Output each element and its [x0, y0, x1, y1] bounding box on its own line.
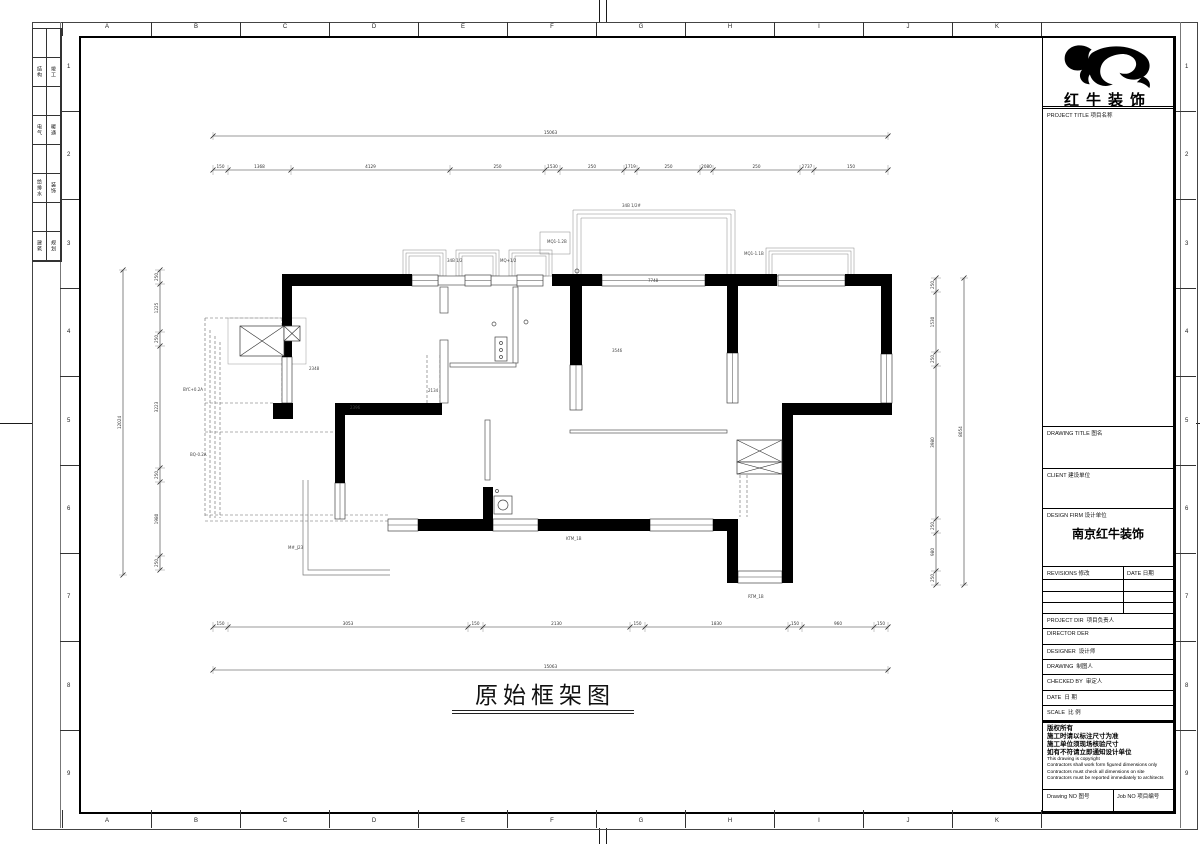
dim-label: 250	[588, 164, 596, 169]
dim-label: 250	[930, 281, 935, 289]
grid-number: 4	[1185, 329, 1188, 335]
grid-tick	[863, 810, 864, 828]
thin-wall	[440, 287, 448, 313]
balcony-frame	[303, 480, 390, 575]
grid-number: 1	[67, 64, 70, 70]
grid-number: 7	[67, 594, 70, 600]
grid-tick	[418, 22, 419, 36]
wall	[418, 519, 493, 531]
grid-tick	[1041, 22, 1042, 36]
fixture-circle	[492, 322, 496, 326]
grid-number: 5	[1185, 418, 1188, 424]
fixture-circle	[496, 490, 499, 493]
grid-letter: H	[728, 818, 732, 824]
dim-label: 1830	[711, 621, 722, 626]
note-line: 如有不符请立即通知设计单位	[1047, 749, 1169, 757]
grid-number: 8	[67, 683, 70, 689]
dim-label: 150	[472, 621, 480, 626]
grid-letter: B	[194, 818, 198, 824]
grid-tick	[1176, 288, 1196, 289]
wall	[881, 274, 892, 354]
dim-label: 2130	[551, 621, 562, 626]
rednull-logo-icon	[1058, 40, 1158, 90]
grid-letter: D	[372, 818, 376, 824]
grid-tick	[685, 810, 686, 828]
plan-label: BQ-0.2A	[190, 452, 207, 457]
dim-label: 250	[930, 355, 935, 363]
grid-tick	[60, 465, 79, 466]
title-block-row-label: DATE 日 期	[1047, 693, 1077, 701]
grid-tick	[1176, 641, 1196, 642]
plan-label: KTM_1B	[566, 536, 582, 541]
grid-tick	[596, 22, 597, 36]
grid-number: 6	[1185, 506, 1188, 512]
dim-label: 150	[217, 164, 225, 169]
title-underline	[452, 710, 634, 711]
fixture-circle	[500, 349, 503, 352]
note-line: Contractors must be reported immediately…	[1047, 776, 1169, 782]
grid-tick	[329, 810, 330, 828]
dim-label: 250	[494, 164, 502, 169]
plan-label: 34B 1/2#	[622, 203, 642, 208]
grid-number: 7	[1185, 594, 1188, 600]
dim-label: 1980	[154, 513, 159, 524]
grid-tick	[863, 22, 864, 36]
fixture-circle	[500, 356, 503, 359]
wall	[727, 276, 738, 353]
dim-label: 1719	[625, 164, 636, 169]
grid-letter: I	[818, 818, 820, 824]
wall	[782, 415, 793, 583]
grid-letter: C	[283, 24, 287, 30]
grid-tick	[1176, 730, 1196, 731]
grid-tick	[60, 641, 79, 642]
wall	[713, 519, 738, 531]
revisions-table: REVISIONS 修改 DATE 日期	[1043, 566, 1173, 613]
grid-tick	[952, 22, 953, 36]
thin-wall	[570, 430, 727, 433]
dim-label: 960	[834, 621, 842, 626]
terrace-outline	[577, 214, 731, 276]
dim-label: 3223	[154, 401, 159, 412]
wall	[782, 403, 892, 415]
note-line: Contractors shall work form figured dime…	[1047, 763, 1169, 769]
dim-label: 2080	[701, 164, 712, 169]
grid-number: 2	[67, 152, 70, 158]
note-line: 施工时请以标注尺寸为准	[1047, 733, 1169, 741]
grid-tick	[60, 111, 79, 112]
dim-label: 150	[217, 621, 225, 626]
grid-tick	[1176, 376, 1196, 377]
bay-window	[459, 253, 496, 276]
bay-window	[769, 251, 851, 276]
dim-label: 250	[154, 335, 159, 343]
dim-label: 1530	[547, 164, 558, 169]
plan-label: 3546	[612, 348, 623, 353]
fixture-circle	[498, 500, 508, 510]
dim-label: 15063	[544, 130, 558, 135]
grid-number: 4	[67, 329, 70, 335]
plan-label: 2134	[428, 388, 439, 393]
grid-letter: E	[461, 24, 465, 30]
plan-label: 34B 1/2	[447, 258, 463, 263]
copyright-notes: 版权所有施工时请以标注尺寸为准施工单位须现场核验尺寸如有不符请立即通知设计单位T…	[1043, 722, 1173, 789]
title-block-row-label: DIRECTOR DER	[1047, 631, 1089, 637]
grid-tick	[60, 199, 79, 200]
grid-tick	[151, 810, 152, 828]
bay-window	[515, 256, 546, 276]
grid-number: 2	[1185, 152, 1188, 158]
dim-label: 150	[634, 621, 642, 626]
dim-label: 250	[930, 522, 935, 530]
project-title-label: PROJECT TITLE 项目名称	[1047, 111, 1113, 119]
drawing-no-box: Drawing NO 图号 Job NO 项目编号	[1043, 789, 1173, 811]
grid-letter: J	[907, 24, 910, 30]
thin-wall	[450, 363, 516, 367]
grid-tick	[507, 810, 508, 828]
fixture-circle	[500, 342, 503, 345]
terrace-outline	[581, 218, 727, 276]
grid-tick	[507, 22, 508, 36]
title-block-row: PROJECT DIR 项目负责人	[1043, 613, 1173, 628]
title-block-row: DESIGNER 设计师	[1043, 644, 1173, 659]
dim-label: 2737	[802, 164, 813, 169]
dim-label: 980	[930, 548, 935, 556]
plan-label: MQ1-1.1B	[744, 251, 764, 256]
grid-letter: D	[372, 24, 376, 30]
grid-tick	[774, 22, 775, 36]
plan-label: RTM_1B	[748, 594, 764, 599]
bay-window	[406, 253, 443, 276]
grid-tick	[62, 810, 63, 828]
bay-window	[403, 250, 446, 276]
terrace-outline	[573, 210, 735, 276]
wall	[273, 403, 293, 419]
plan-label: BYC+0.2A	[183, 387, 203, 392]
title-block-row-label: DRAWING 制图人	[1047, 662, 1093, 670]
grid-tick	[60, 553, 79, 554]
grid-letter: F	[550, 818, 554, 824]
grid-letter: E	[461, 818, 465, 824]
drawing-sheet: 结构竣工电气暖通给排水装饰建筑规划 34B 1/2#MQ1-1.2B7748MQ…	[0, 0, 1200, 844]
title-underline	[452, 713, 634, 714]
dim-label: 3980	[930, 437, 935, 448]
floor-plan: 34B 1/2#MQ1-1.2B7748MQ1-1.1B34B 1/2MQ+1/…	[0, 0, 1200, 844]
grid-letter: G	[639, 818, 644, 824]
title-block-row-label: DESIGNER 设计师	[1047, 647, 1095, 655]
fixture-circle	[524, 320, 528, 324]
grid-number: 9	[1185, 771, 1188, 777]
grid-number: 3	[1185, 241, 1188, 247]
grid-tick	[1176, 111, 1196, 112]
grid-number: 8	[1185, 683, 1188, 689]
plan-label: 2348	[309, 366, 320, 371]
wall	[483, 487, 493, 520]
title-block-row-label: CHECKED BY 审定人	[1047, 677, 1102, 685]
title-block-row-label: PROJECT DIR 项目负责人	[1047, 616, 1114, 624]
bay-window	[766, 248, 854, 276]
title-block-row: DIRECTOR DER	[1043, 628, 1173, 643]
dim-label: 250	[753, 164, 761, 169]
dim-label: 12024	[117, 416, 122, 430]
grid-number: 9	[67, 771, 70, 777]
grid-tick	[774, 810, 775, 828]
grid-tick	[62, 22, 63, 36]
grid-letter: F	[550, 24, 554, 30]
dim-label: 1368	[254, 164, 265, 169]
wall	[705, 274, 777, 286]
grid-letter: C	[283, 818, 287, 824]
thin-wall	[438, 276, 467, 285]
title-block: 红牛装饰 PROJECT TITLE 项目名称 DRAWING TITLE 图名…	[1042, 36, 1174, 812]
client-box: CLIENT 建设单位	[1043, 468, 1173, 508]
plan-label: 2396	[350, 405, 361, 410]
bay-window	[456, 250, 499, 276]
grid-letter: A	[105, 24, 109, 30]
design-firm-box: DESIGN FIRM 设计单位 南京红牛装饰	[1043, 508, 1173, 566]
title-block-row-label: SCALE 比 例	[1047, 708, 1081, 716]
dim-label: 250	[154, 559, 159, 567]
grid-letter: I	[818, 24, 820, 30]
title-block-row: DRAWING 制图人	[1043, 659, 1173, 674]
grid-tick	[418, 810, 419, 828]
grid-letter: H	[728, 24, 732, 30]
dim-label: 1225	[154, 302, 159, 313]
plan-title: 原始框架图	[455, 676, 635, 710]
grid-number: 6	[67, 506, 70, 512]
grid-tick	[60, 376, 79, 377]
grid-letter: J	[907, 818, 910, 824]
balcony-frame	[308, 480, 390, 570]
bay-window	[409, 256, 440, 276]
plan-label: M#_J23	[288, 545, 304, 550]
grid-tick	[952, 810, 953, 828]
grid-tick	[1176, 553, 1196, 554]
dim-label: 150	[791, 621, 799, 626]
grid-tick	[1041, 810, 1042, 828]
thin-wall	[485, 420, 490, 480]
grid-tick	[60, 288, 79, 289]
drawing-title-box: DRAWING TITLE 图名	[1043, 426, 1173, 468]
thin-wall	[513, 287, 518, 363]
grid-tick	[1176, 465, 1196, 466]
fixture	[495, 337, 507, 361]
grid-letter: G	[639, 24, 644, 30]
thin-wall	[491, 276, 519, 285]
note-line: 施工单位须现场核验尺寸	[1047, 741, 1169, 749]
dim-label: 150	[877, 621, 885, 626]
grid-tick	[240, 810, 241, 828]
wall	[570, 274, 582, 365]
dim-label: 250	[930, 574, 935, 582]
grid-tick	[596, 810, 597, 828]
grid-number: 5	[67, 418, 70, 424]
note-line: 版权所有	[1047, 725, 1169, 733]
dim-label: 1530	[930, 316, 935, 327]
plan-label: MQ+1/2	[500, 258, 517, 263]
grid-tick	[240, 22, 241, 36]
grid-letter: K	[995, 818, 999, 824]
grid-number: 3	[67, 241, 70, 247]
dim-label: 150	[847, 164, 855, 169]
wall	[538, 519, 650, 531]
dim-label: 250	[154, 471, 159, 479]
dim-label: 3053	[343, 621, 354, 626]
thin-wall	[440, 340, 448, 403]
wall	[282, 274, 412, 286]
title-block-row: DATE 日 期	[1043, 690, 1173, 705]
grid-letter: A	[105, 818, 109, 824]
title-block-row: CHECKED BY 审定人	[1043, 674, 1173, 689]
grid-number: 1	[1185, 64, 1188, 70]
title-block-row: SCALE 比 例	[1043, 705, 1173, 720]
dim-label: 250	[665, 164, 673, 169]
grid-tick	[329, 22, 330, 36]
dim-label: 8054	[958, 426, 963, 437]
bay-window	[772, 254, 848, 276]
fixture	[494, 496, 512, 514]
bay-window	[462, 256, 493, 276]
grid-letter: K	[995, 24, 999, 30]
grid-tick	[685, 22, 686, 36]
grid-tick	[151, 22, 152, 36]
dim-label: 4129	[365, 164, 376, 169]
plan-label: MQ1-1.2B	[547, 239, 567, 244]
bay-window	[512, 253, 549, 276]
grid-tick	[1176, 199, 1196, 200]
grid-tick	[60, 730, 79, 731]
dim-label: 15063	[544, 664, 558, 669]
grid-letter: B	[194, 24, 198, 30]
design-firm-name: 南京红牛装饰	[1043, 525, 1173, 542]
plan-label: 7748	[648, 278, 659, 283]
dim-label: 250	[154, 273, 159, 281]
